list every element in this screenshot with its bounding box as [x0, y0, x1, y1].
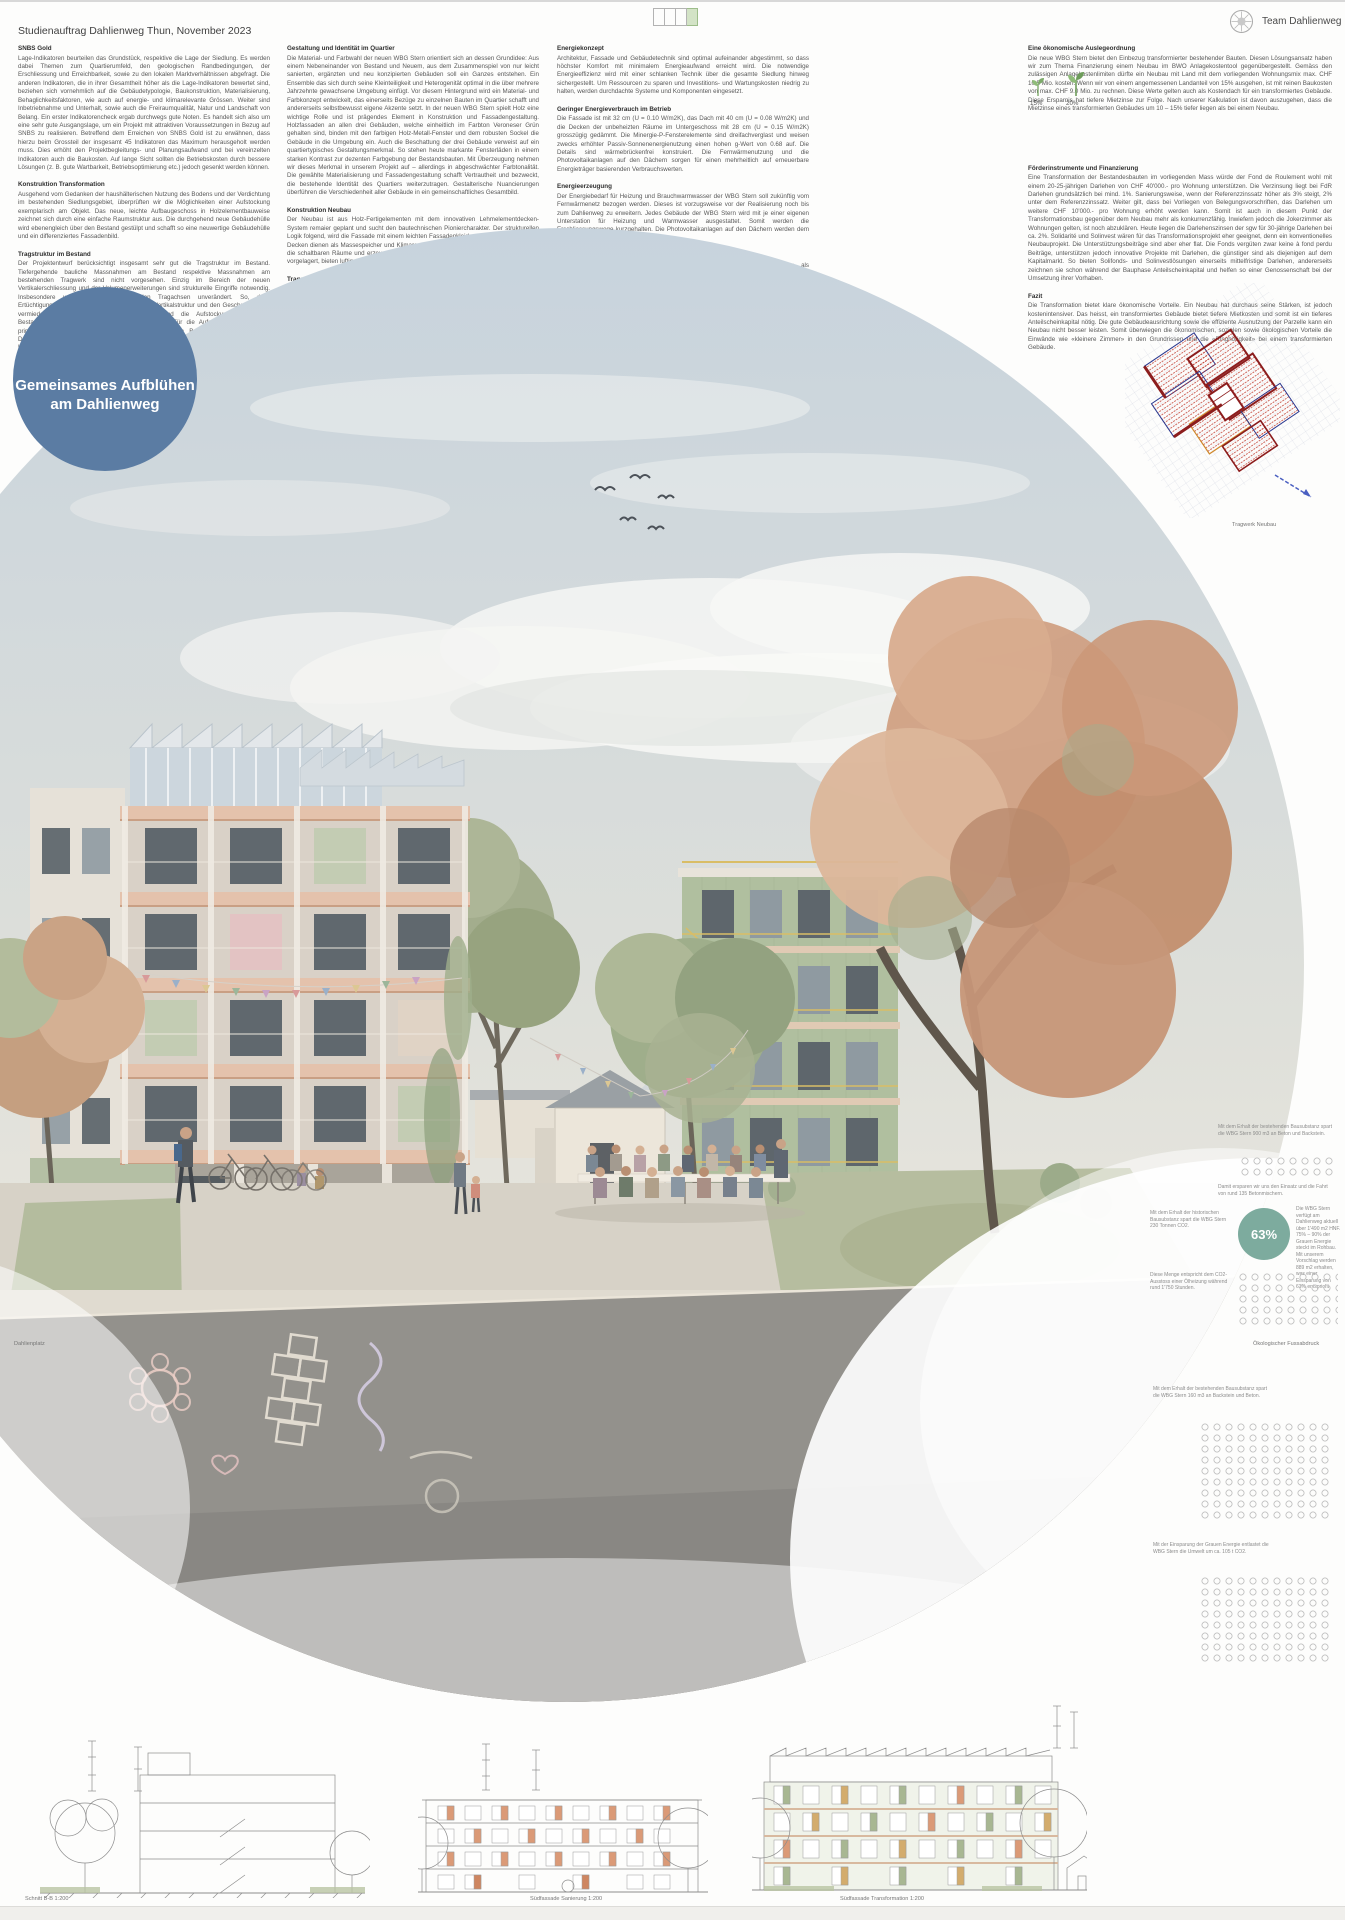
status-box	[653, 8, 665, 26]
section-heading: Gestaltung und Identität im Quartier	[287, 45, 539, 54]
drawing-caption-renovation: Südfassade Sanierung 1:200	[530, 1896, 602, 1902]
sprout-icon	[1030, 74, 1046, 98]
eco-caption: Ökologischer Fussabdruck	[1253, 1341, 1319, 1347]
section-heading: Konstruktion Transformation	[18, 181, 270, 190]
team-stamp-icon	[1228, 8, 1255, 35]
section-heading: Geringer Energieverbrauch im Betrieb	[557, 106, 809, 115]
eco-text-co2: Mit dem Erhalt der historischen Bausubst…	[1150, 1210, 1232, 1230]
section-heading: Konstruktion Neubau	[287, 207, 539, 216]
section-body: Architektur, Fassade und Gebäudetechnik …	[557, 55, 809, 97]
top-divider	[0, 0, 1345, 2]
section-heading: Förderinstrumente und Finanzierung	[1028, 165, 1332, 174]
structural-plan-diagram	[1125, 283, 1340, 518]
badge-line1: Gemeinsames Aufblühen	[15, 377, 195, 394]
brick-icon-grid	[1240, 1156, 1336, 1178]
project-title-badge: Gemeinsames Aufblühen am Dahlienweg	[13, 287, 197, 471]
badge-line2: am Dahlienweg	[50, 396, 159, 413]
sprout-icon	[1066, 68, 1086, 98]
section-heading: Eine ökonomische Auslegeordnung	[1028, 45, 1332, 54]
eco-text-equivalent: Diese Menge entspricht dem CO2-Ausstoss …	[1150, 1272, 1232, 1292]
poster-title: Studienauftrag Dahlienweg Thun, November…	[18, 25, 251, 37]
team-block: Team Dahlienweg	[1228, 8, 1342, 35]
courtyard-rendering	[0, 228, 1304, 1702]
status-box	[665, 8, 676, 26]
section-heading: Energieerzeugung	[557, 183, 809, 192]
team-name: Team Dahlienweg	[1262, 16, 1342, 27]
status-box-filled	[687, 8, 698, 26]
scene-caption-left: Dahlienplatz	[14, 1341, 45, 1347]
section-body: Die Fassade ist mit 32 cm (U = 0.10 W/m2…	[557, 115, 809, 174]
status-boxes-icon	[653, 8, 698, 26]
savings-pct-new: 20%	[1066, 100, 1078, 107]
co2-cloud-icon-grid	[1238, 1272, 1338, 1328]
section-body: Die Material- und Farbwahl der neuen WBG…	[287, 55, 539, 198]
section-body: Eine Transformation der Bestandesbauten …	[1028, 174, 1332, 283]
section-body: Lage-Indikatoren beurteilen das Grundstü…	[18, 55, 270, 173]
status-box	[676, 8, 687, 26]
section-drawing	[30, 1733, 370, 1898]
drawing-caption-transformation: Südfassade Transformation 1:200	[840, 1896, 924, 1902]
section-heading: SNBS Gold	[18, 45, 270, 54]
section-body: Ausgehend vom Gedanken der haushälterisc…	[18, 191, 270, 242]
competition-poster: Studienauftrag Dahlienweg Thun, November…	[0, 0, 1345, 1920]
savings-pct-existing: 15%	[1030, 100, 1042, 107]
elevation-renovation-drawing	[418, 1738, 708, 1898]
material-icon-grid	[1200, 1422, 1332, 1522]
section-heading: Tragstruktur im Bestand	[18, 251, 270, 260]
co2-icon-grid	[1200, 1576, 1332, 1662]
rendering-scene	[0, 228, 1304, 1702]
eco-text-mixers: Damit ersparen wir uns den Einsatz und d…	[1218, 1184, 1336, 1197]
savings-stat-circle: 63%	[1238, 1208, 1290, 1260]
plan-caption: Tragwerk Neubau	[1232, 522, 1276, 528]
drawing-caption-section: Schnitt B-B 1:200	[25, 1896, 69, 1902]
eco-text-material: Mit dem Erhalt der bestehenden Bausubsta…	[1218, 1124, 1336, 1137]
eco-text-grey-energy: Mit der Einsparung der Grauen Energie en…	[1153, 1542, 1275, 1555]
elevation-transformation-drawing	[752, 1698, 1087, 1898]
section-heading: Energiekonzept	[557, 45, 809, 54]
eco-text-brick2: Mit dem Erhalt der bestehenden Bausubsta…	[1153, 1386, 1275, 1399]
footer-band	[0, 1906, 1345, 1920]
